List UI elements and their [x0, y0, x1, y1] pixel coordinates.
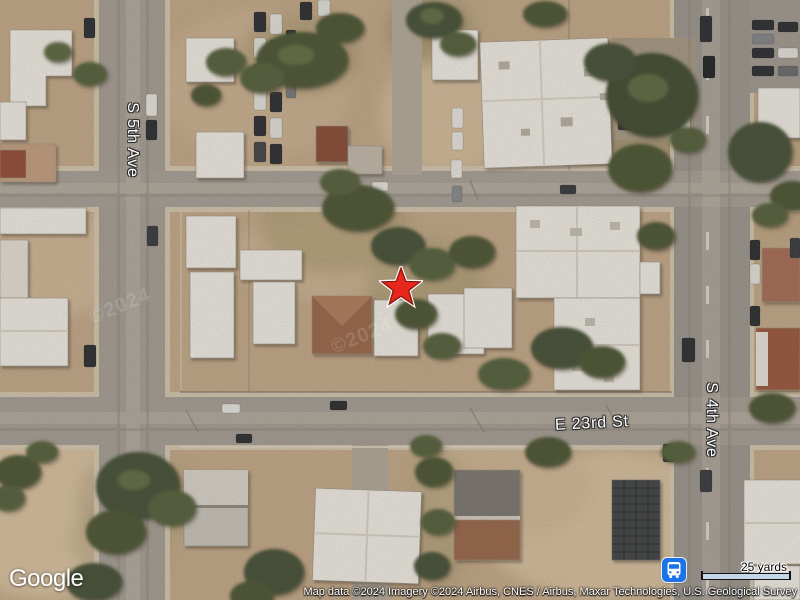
- map-attribution: Map data ©2024 Imagery ©2024 Airbus, CNE…: [303, 586, 797, 598]
- bus-glyph: [662, 558, 686, 582]
- map-viewport[interactable]: ©2024 ©2024 S 5th Ave S 4th Ave E 23rd S…: [0, 0, 800, 600]
- scale-label: 25 yards: [741, 560, 787, 574]
- bus-station-icon[interactable]: [662, 558, 686, 582]
- scale-bar: [702, 573, 790, 580]
- google-logo[interactable]: Google: [9, 565, 83, 593]
- star-marker[interactable]: [379, 266, 423, 310]
